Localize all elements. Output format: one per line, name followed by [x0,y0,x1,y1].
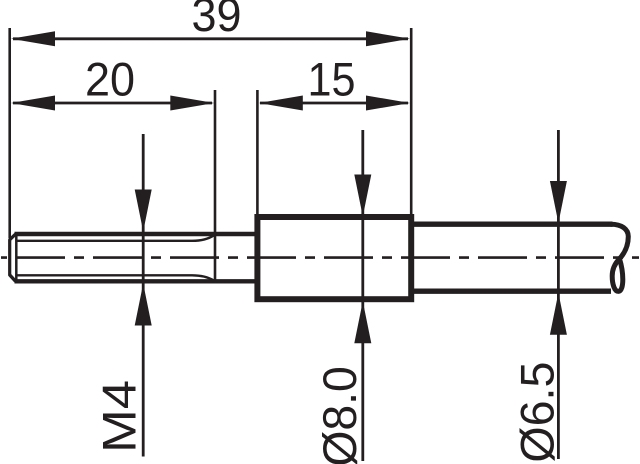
svg-text:Ø6.5: Ø6.5 [510,362,563,463]
svg-text:15: 15 [308,52,356,105]
svg-text:20: 20 [85,52,135,105]
svg-text:39: 39 [192,0,242,41]
svg-text:M4: M4 [93,380,146,453]
svg-text:Ø8.0: Ø8.0 [313,366,366,464]
